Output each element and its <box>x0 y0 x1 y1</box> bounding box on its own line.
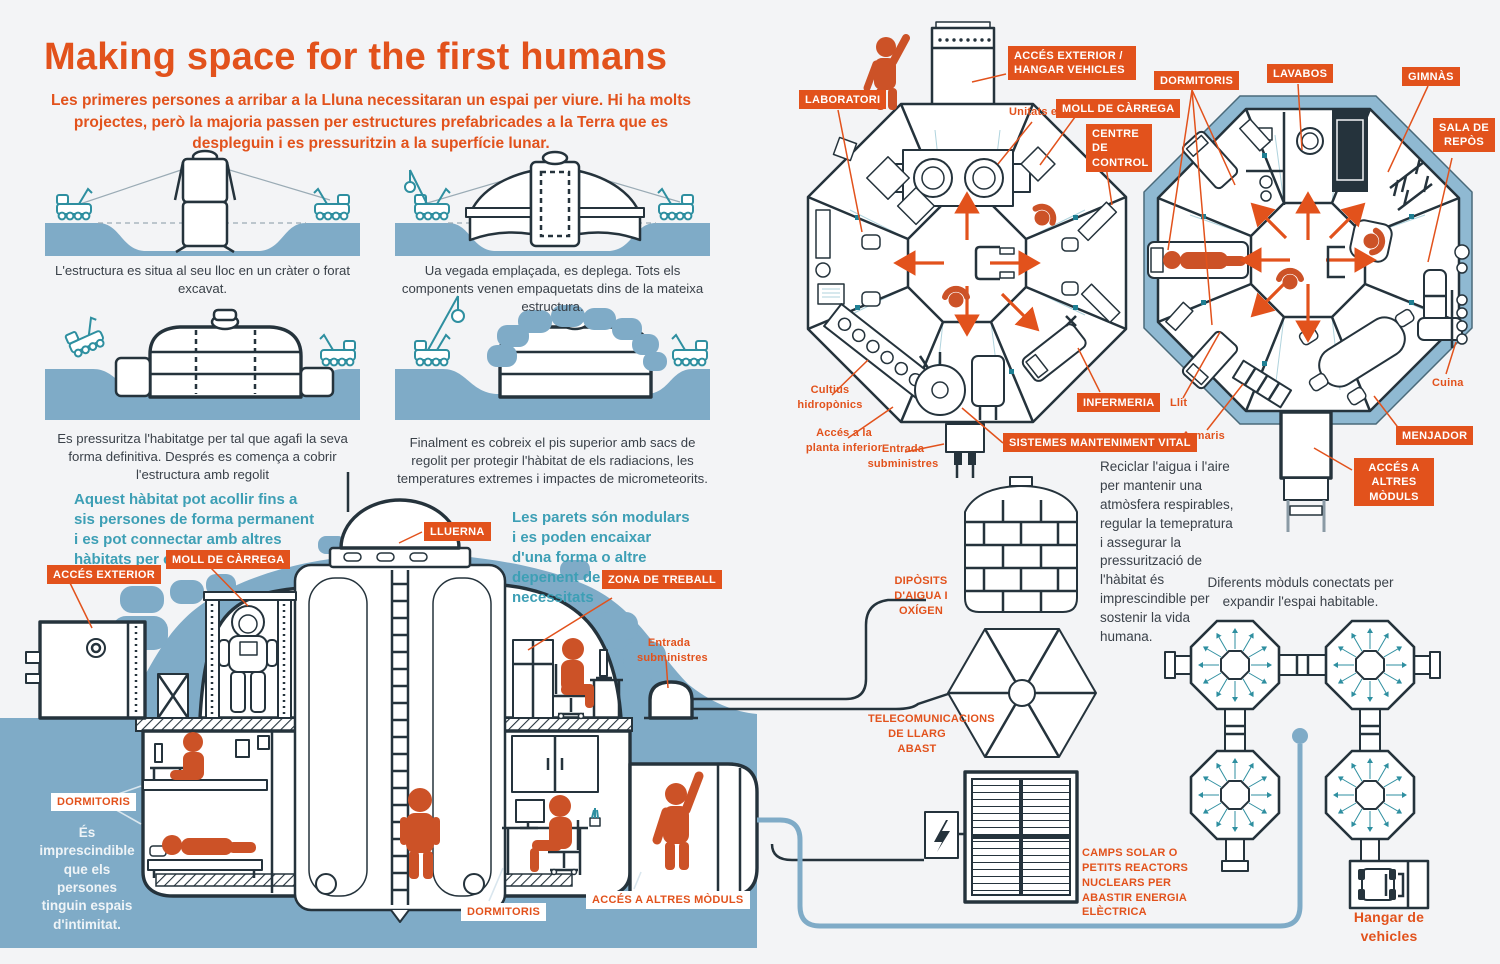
step3-caption: Es pressuritza l'habitatge per tal que a… <box>45 430 360 483</box>
solar-panel-diagram <box>925 772 1077 902</box>
step3-illustration <box>45 310 360 420</box>
label-acces-altres-cs: ACCÉS A ALTRES MÒDULS <box>586 891 750 909</box>
label-lluerna: LLUERNA <box>424 522 491 541</box>
label-armaris: Armaris <box>1182 429 1225 444</box>
label-entrada-subministres-plan: Entrada subministres <box>866 442 940 472</box>
label-cuina: Cuina <box>1432 376 1464 391</box>
label-diposits: DIPÒSITS D'AIGUA I OXÍGEN <box>876 574 966 619</box>
label-sala-repos: SALA DE REPÒS <box>1433 118 1495 152</box>
label-entrada-subministres-cs: Entrada subministres <box>637 636 701 666</box>
label-hangar-vehicles: Hangar de vehicles <box>1336 908 1442 946</box>
label-acces-altres-plan: ACCÉS A ALTRES MÒDULS <box>1354 458 1434 506</box>
vehicle-hangar <box>1350 861 1428 908</box>
step1-caption: L'estructura es situa al seu lloc en un … <box>45 262 360 298</box>
intro-text: Les primeres persones a arribar a la Llu… <box>42 90 700 155</box>
page-title: Making space for the first humans <box>44 36 667 79</box>
step1-illustration <box>45 151 360 256</box>
label-llit: Llit <box>1170 396 1187 411</box>
label-moll-carrega-cs: MOLL DE CÀRREGA <box>166 550 290 569</box>
note-life-support: Reciclar l'aigua i l'aire per mantenir u… <box>1100 458 1238 647</box>
poster-root: .gnd{fill:#7FABC7;stroke:none} .k{stroke… <box>0 0 1500 964</box>
label-centre-control: CENTRE DE CONTROL <box>1086 124 1152 172</box>
note-walls: Les parets són modulars i es poden encai… <box>512 508 692 608</box>
label-infermeria: INFERMERIA <box>1077 393 1160 412</box>
label-dormitoris-bottom: DORMITORIS <box>461 903 546 921</box>
label-dormitoris-plan: DORMITORIS <box>1154 71 1239 90</box>
step4-caption: Finalment es cobreix el pis superior amb… <box>395 434 710 487</box>
supply-entry-dome <box>644 682 698 718</box>
note-privacy: És imprescindible que els persones tingu… <box>38 824 136 934</box>
label-energia: CAMPS SOLAR O PETITS REACTORS NUCLEARS P… <box>1082 846 1190 920</box>
note-expansion: Diferents mòduls conectats per expandir … <box>1198 574 1403 612</box>
label-cultius: Cultius hidropònics <box>794 383 866 413</box>
antenna-diagram <box>948 629 1096 757</box>
label-lavabos: LAVABOS <box>1267 64 1333 83</box>
label-sistemes: SISTEMES MANTENIMENT VITAL <box>1003 433 1197 452</box>
airlock-module <box>26 622 145 718</box>
step2-illustration <box>395 152 710 256</box>
label-gimnas: GIMNÀS <box>1402 67 1460 86</box>
label-moll-carrega-plan: MOLL DE CÀRREGA <box>1056 99 1180 118</box>
label-dormitoris-left: DORMITORIS <box>51 793 136 811</box>
label-menjador: MENJADOR <box>1396 426 1473 445</box>
module-access-corridor <box>1281 412 1331 532</box>
label-telecom: TELECOMUNICACIONS DE LLARG ABAST <box>868 712 966 757</box>
label-zona-treball: ZONA DE TREBALL <box>602 570 722 589</box>
step2-caption: Ua vegada emplaçada, es deplega. Tots el… <box>395 262 710 315</box>
water-tank-diagram <box>965 477 1077 612</box>
label-acces-hangar: ACCÉS EXTERIOR / HANGAR VEHICLES <box>1008 46 1136 80</box>
label-laboratori: LABORATORI <box>799 90 886 109</box>
label-acces-exterior: ACCÉS EXTERIOR <box>47 565 161 584</box>
